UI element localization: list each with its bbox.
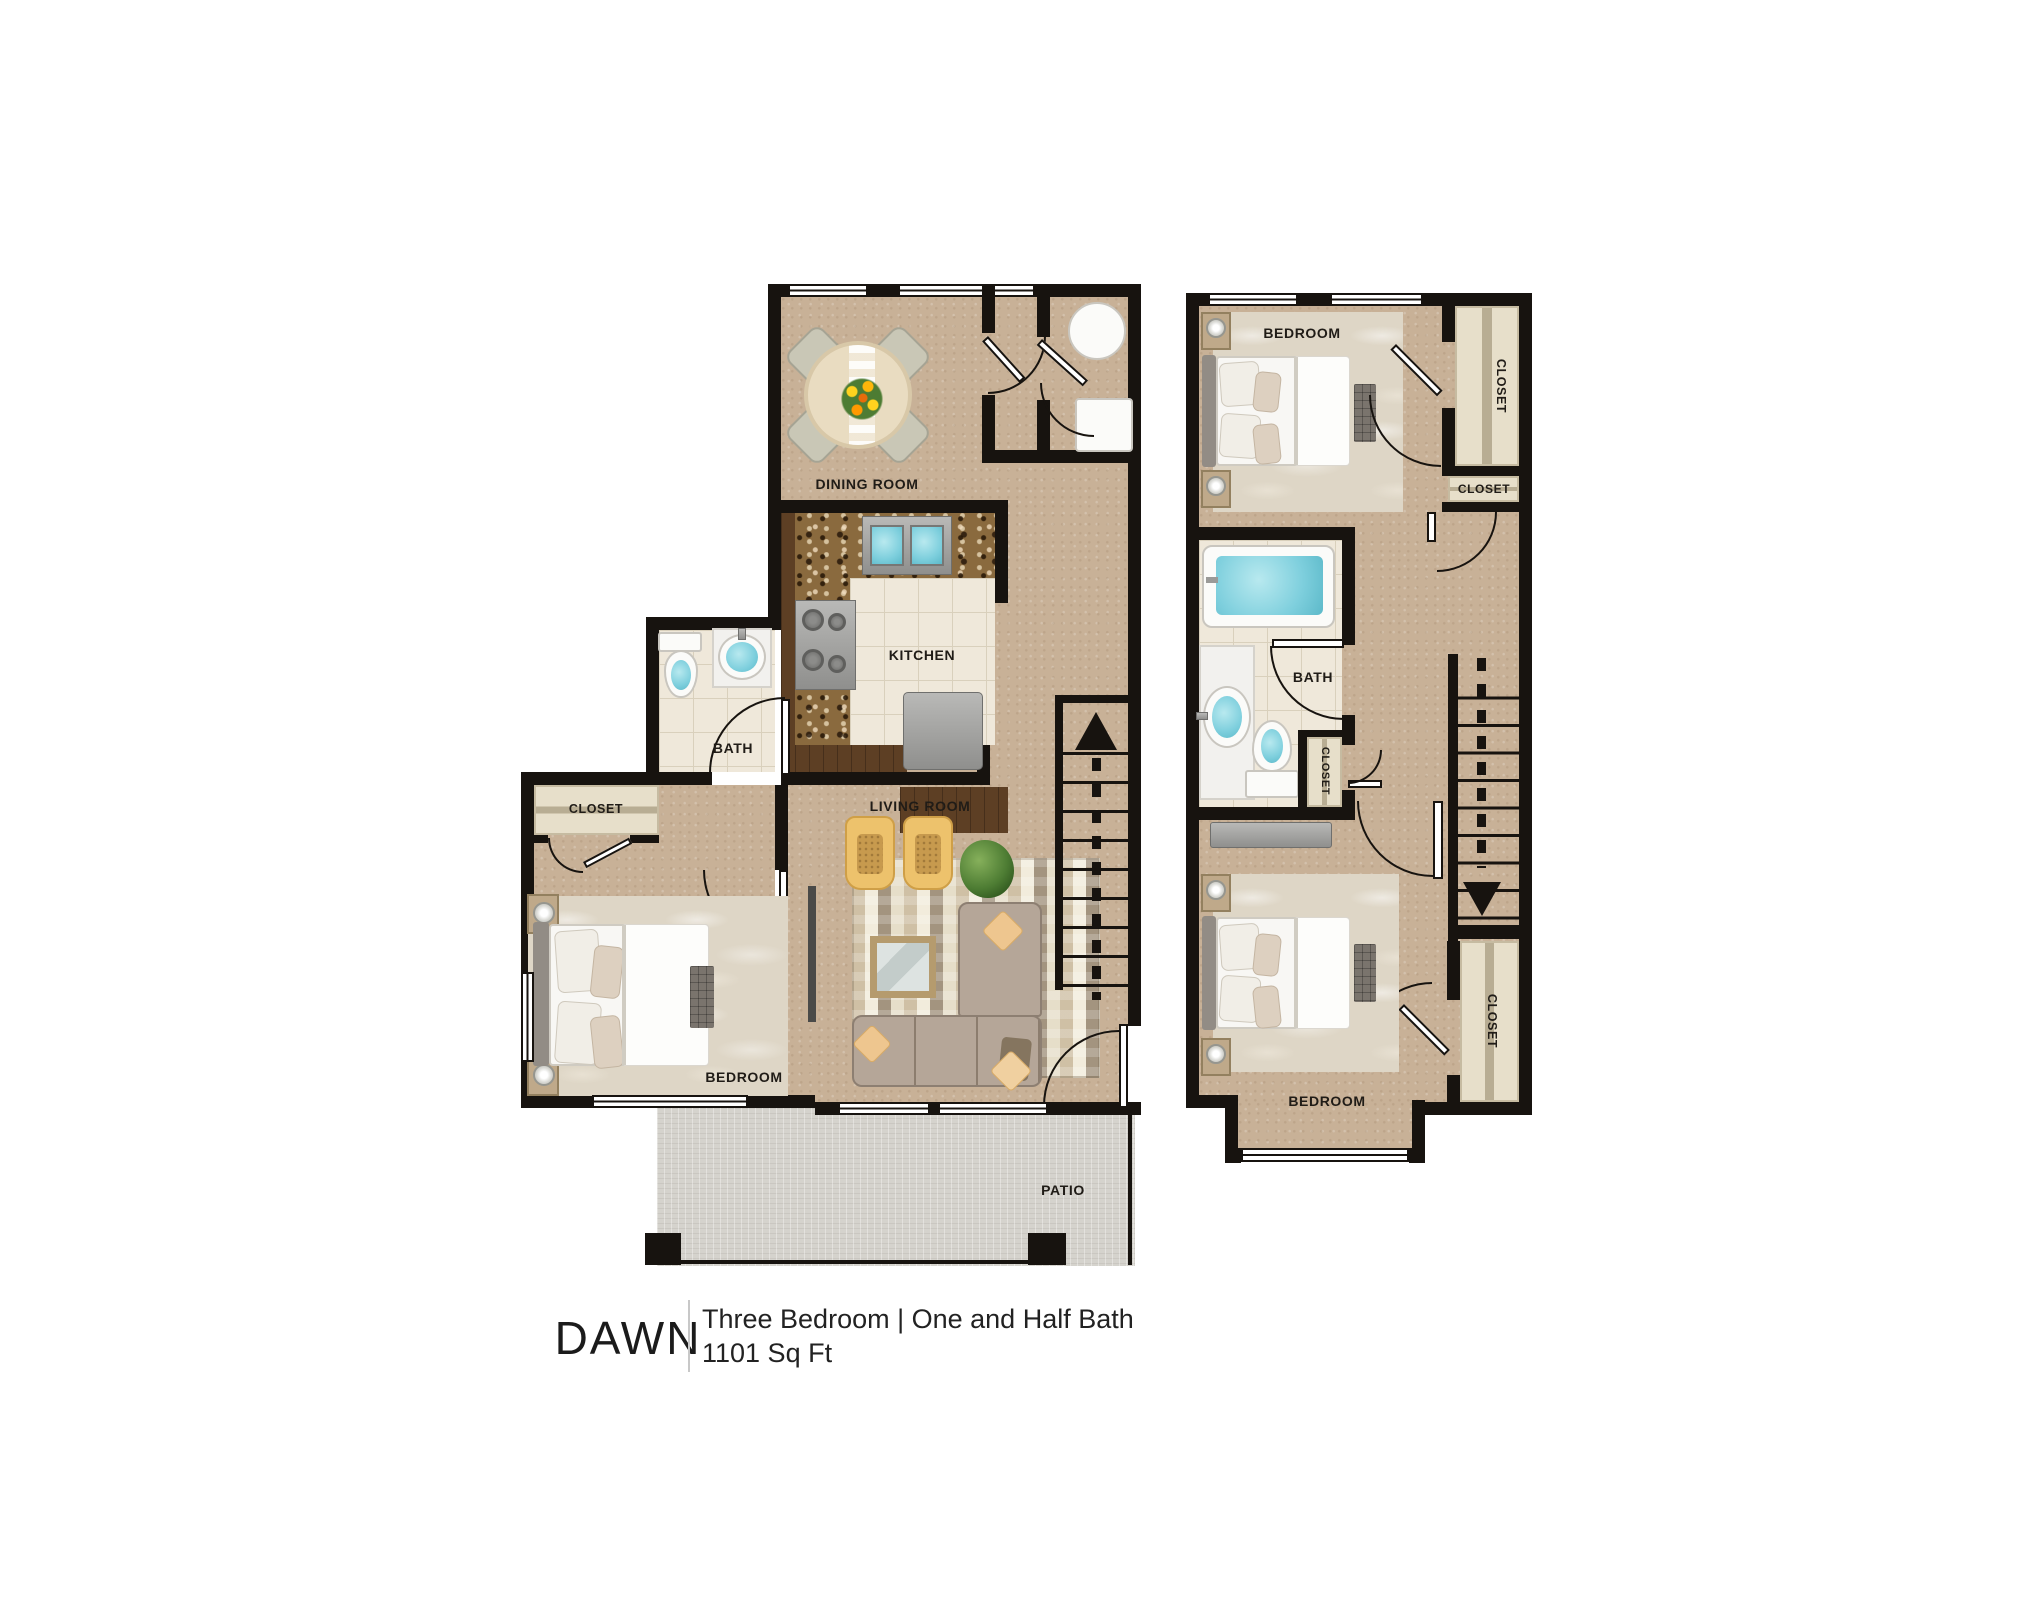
- lamp: [533, 1064, 555, 1086]
- stove: [795, 600, 856, 690]
- flower-centerpiece: [837, 374, 887, 424]
- wall: [1128, 284, 1141, 1026]
- closet-label: CLOSET: [1458, 483, 1510, 495]
- faucet: [1196, 712, 1208, 720]
- wall: [534, 835, 548, 843]
- wall: [1186, 527, 1355, 540]
- plant: [960, 840, 1014, 898]
- bedroom-window: [1208, 293, 1298, 306]
- patio-edge: [681, 1260, 1028, 1264]
- bath-sink: [718, 634, 766, 680]
- bedroom-window: [1330, 293, 1423, 306]
- bed-headboard: [1202, 916, 1216, 1030]
- accent-pillow: [589, 1015, 624, 1070]
- bed-headboard: [1202, 355, 1216, 467]
- stairs-up-arrow: [1075, 712, 1117, 750]
- bedroom-window: [521, 972, 534, 1062]
- coffee-table: [870, 936, 936, 998]
- closet-label: CLOSET: [1494, 359, 1508, 413]
- bed-bench: [1354, 944, 1376, 1002]
- wall: [781, 772, 985, 785]
- kitchen-sink: [862, 516, 952, 575]
- accent-pillow: [1252, 933, 1282, 977]
- footer-divider: [688, 1300, 690, 1372]
- wall: [1442, 502, 1532, 512]
- plan-details: Three Bedroom | One and Half Bath 1101 S…: [702, 1302, 1134, 1370]
- plan-description: Three Bedroom | One and Half Bath: [702, 1302, 1134, 1336]
- toilet-water: [1261, 729, 1283, 763]
- lamp: [1206, 880, 1226, 900]
- plan-area: 1101 Sq Ft: [702, 1336, 1134, 1370]
- bay-window: [1241, 1148, 1409, 1162]
- stove-burner: [828, 613, 846, 631]
- stairs-down-arrow: [1463, 882, 1501, 916]
- bay-floor-fill: [1238, 1102, 1412, 1152]
- wall: [1298, 730, 1307, 807]
- patio-label: PATIO: [1041, 1183, 1085, 1197]
- patio-post: [645, 1233, 681, 1265]
- plan-name: DAWN: [555, 1311, 702, 1365]
- water-heater: [1068, 302, 1126, 360]
- lamp: [1206, 476, 1226, 496]
- dresser: [1210, 822, 1332, 848]
- living-room-window: [938, 1102, 1048, 1115]
- wall: [995, 500, 1008, 603]
- wall: [1442, 408, 1455, 472]
- sink-basin: [910, 525, 944, 566]
- wall: [1037, 284, 1050, 337]
- wall: [1225, 1148, 1241, 1163]
- wall: [1055, 695, 1063, 990]
- bath-sink: [1203, 686, 1251, 748]
- bath-label: BATH: [713, 741, 753, 755]
- sink-basin: [870, 525, 904, 566]
- floorplan-canvas: DINING ROOM KITCHEN: [0, 0, 2042, 1616]
- accent-chair-cushion: [857, 834, 883, 874]
- bedroom-door-leaf: [1433, 801, 1443, 879]
- accent-chair-cushion: [915, 834, 941, 874]
- lamp: [1206, 1044, 1226, 1064]
- closet-shelf: [1455, 306, 1519, 466]
- wall: [1519, 293, 1532, 1115]
- bathtub-faucet: [1206, 577, 1218, 583]
- bed-duvet: [1294, 356, 1350, 466]
- dining-room-label: DINING ROOM: [815, 477, 918, 491]
- wall: [1186, 807, 1355, 820]
- wall: [1448, 654, 1458, 944]
- wall: [1412, 1102, 1532, 1115]
- dining-table: [804, 341, 912, 449]
- wall: [1186, 293, 1199, 1108]
- refrigerator: [903, 692, 983, 770]
- lamp: [533, 902, 555, 924]
- lamp: [1206, 318, 1226, 338]
- page: { "footer": { "name": "DAWN", "descripti…: [0, 0, 2042, 1616]
- bath-label: BATH: [1293, 670, 1333, 684]
- wall: [781, 500, 1008, 513]
- patio-post: [1028, 1233, 1066, 1265]
- stove-burner: [802, 609, 824, 631]
- toilet-water: [671, 660, 691, 690]
- wall: [1447, 1075, 1460, 1102]
- kitchen-label: KITCHEN: [889, 648, 955, 662]
- living-room-window: [838, 1102, 930, 1115]
- sink-water: [1212, 696, 1242, 738]
- front-door-leaf: [1119, 1024, 1128, 1108]
- accent-pillow: [1252, 985, 1282, 1029]
- stove-burner: [802, 649, 824, 671]
- wall: [1298, 730, 1342, 737]
- dining-window: [788, 284, 868, 297]
- bedroom-label: BEDROOM: [1263, 326, 1340, 340]
- bedroom-label: BEDROOM: [705, 1070, 782, 1084]
- wall: [1409, 1148, 1425, 1163]
- wall: [1442, 306, 1455, 342]
- toilet-tank: [1245, 770, 1299, 798]
- closet-label: CLOSET: [1319, 747, 1331, 795]
- bedroom-window: [592, 1095, 748, 1108]
- tv: [808, 886, 816, 1022]
- closet-label: CLOSET: [1485, 994, 1499, 1048]
- wall: [768, 284, 781, 630]
- closet-door-leaf: [1427, 512, 1436, 542]
- bed-duvet: [1294, 917, 1350, 1029]
- accent-pillow: [589, 945, 624, 1000]
- wall: [1448, 925, 1532, 939]
- stairs-dashed-line: [1092, 758, 1101, 1000]
- dining-window: [898, 284, 1035, 297]
- closet-label: CLOSET: [569, 803, 623, 816]
- wall: [1342, 540, 1355, 645]
- toilet-tank: [658, 632, 702, 652]
- wall: [521, 772, 659, 785]
- bathtub: [1202, 545, 1335, 628]
- kitchen-wood-floor: [795, 742, 907, 772]
- bedroom-label: BEDROOM: [1288, 1094, 1365, 1108]
- wall: [1447, 941, 1460, 1000]
- accent-pillow: [1252, 423, 1282, 465]
- bed-bench: [690, 966, 714, 1028]
- wall: [646, 772, 712, 785]
- patio-edge: [1128, 1115, 1132, 1265]
- bed-headboard: [533, 922, 549, 1066]
- stairs-dashed-line: [1477, 658, 1486, 868]
- sink-water: [726, 642, 758, 672]
- stove-burner: [828, 655, 846, 673]
- toilet-bowl: [1252, 720, 1292, 772]
- wall: [630, 835, 659, 843]
- accent-pillow: [1252, 371, 1282, 413]
- wall: [1055, 695, 1135, 703]
- wall: [1442, 466, 1532, 476]
- faucet: [738, 628, 746, 640]
- wall: [982, 284, 995, 333]
- living-room-label: LIVING ROOM: [870, 799, 971, 813]
- bathtub-water: [1216, 556, 1323, 615]
- wall: [775, 785, 788, 870]
